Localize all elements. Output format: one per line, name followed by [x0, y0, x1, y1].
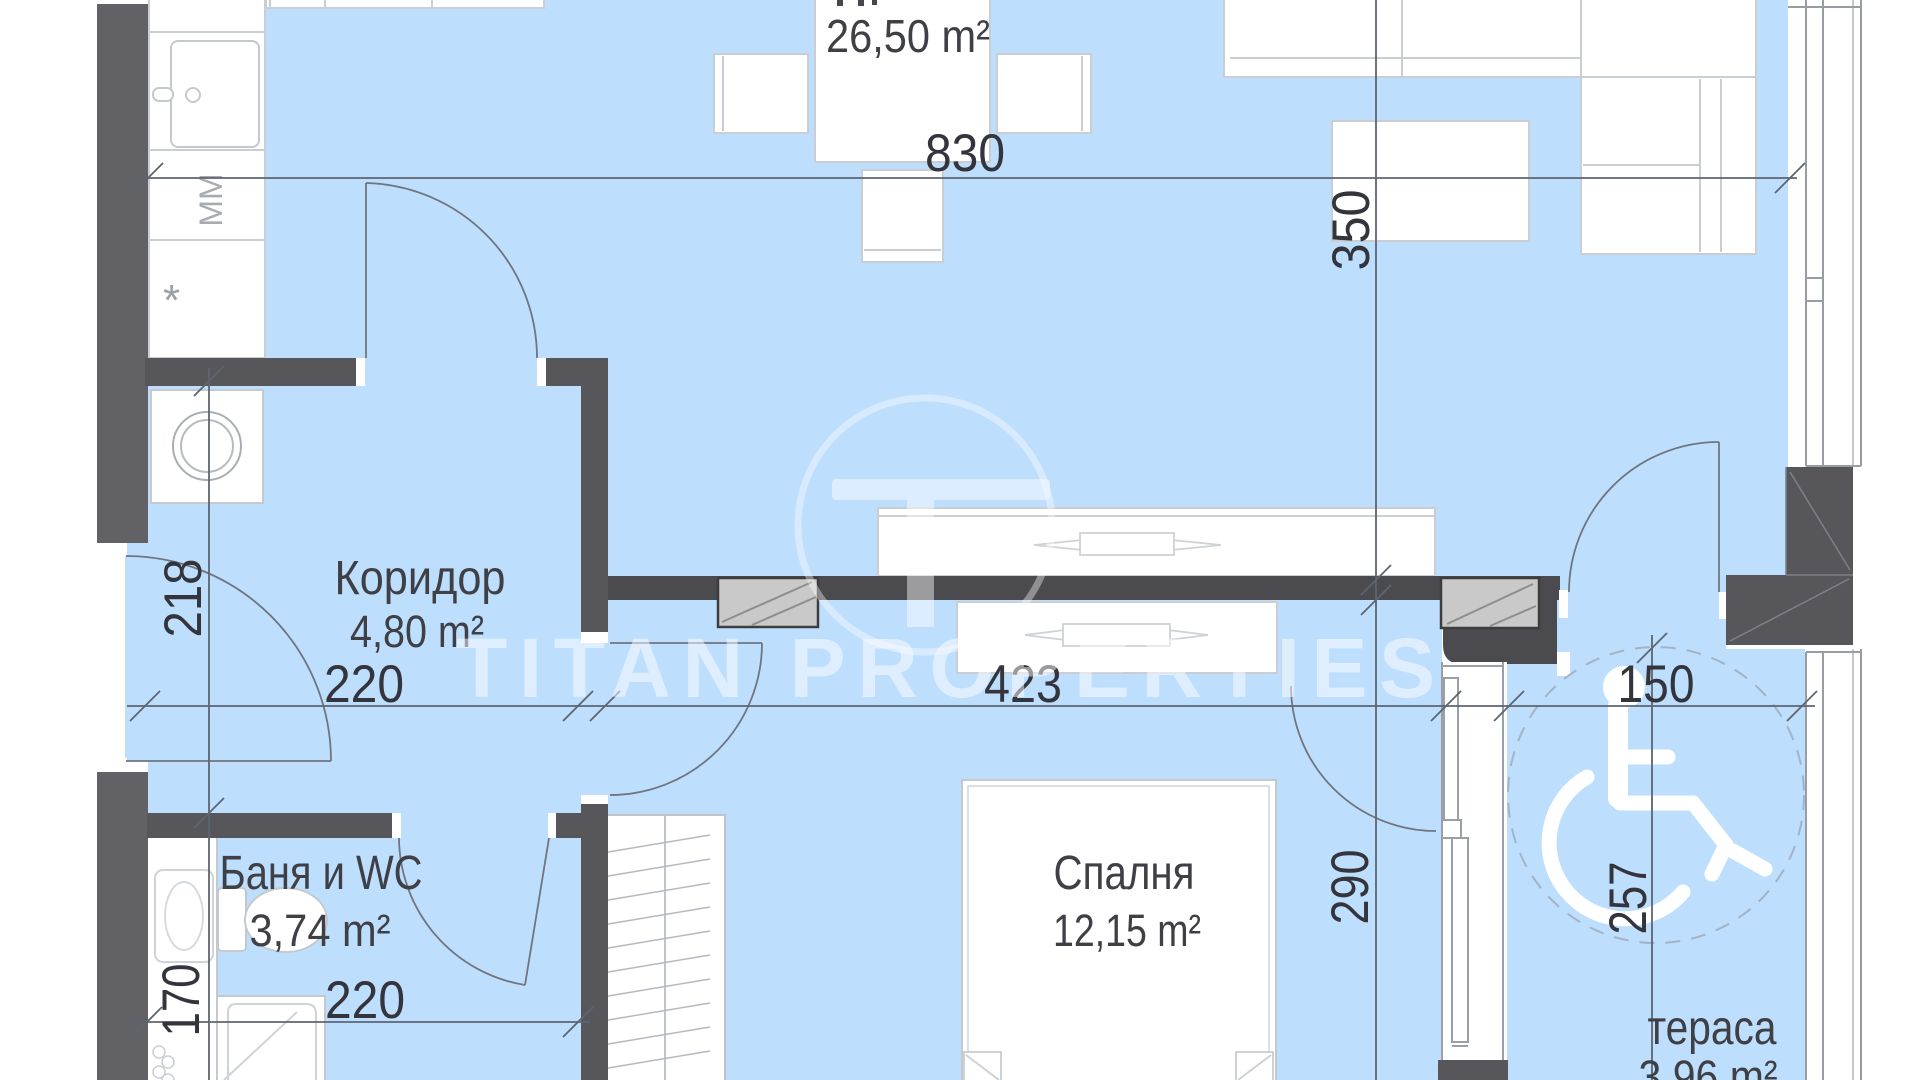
- svg-text:220: 220: [325, 971, 405, 1030]
- svg-text:12,15 m²: 12,15 m²: [1053, 905, 1201, 956]
- svg-text:257: 257: [1599, 862, 1658, 935]
- svg-text:290: 290: [1321, 850, 1380, 925]
- svg-text:3,96 m²: 3,96 m²: [1639, 1051, 1778, 1080]
- svg-text:*: *: [163, 276, 180, 325]
- svg-text:Баня и WC: Баня и WC: [220, 847, 423, 900]
- svg-text:830: 830: [925, 124, 1005, 183]
- svg-text:350: 350: [1322, 190, 1381, 271]
- svg-text:220: 220: [324, 655, 404, 714]
- svg-text:MM: MM: [193, 173, 229, 226]
- svg-text:26,50 m²: 26,50 m²: [826, 10, 990, 62]
- svg-text:218: 218: [154, 559, 213, 638]
- svg-text:Коридор: Коридор: [335, 552, 506, 605]
- svg-text:Спалня: Спалня: [1054, 847, 1195, 900]
- svg-text:TITAN PROPERTIES: TITAN PROPERTIES: [456, 621, 1441, 715]
- svg-text:170: 170: [152, 964, 211, 1037]
- svg-text:3,74 m²: 3,74 m²: [250, 905, 391, 956]
- svg-text:тераса: тераса: [1648, 1002, 1777, 1055]
- svg-text:150: 150: [1618, 655, 1695, 714]
